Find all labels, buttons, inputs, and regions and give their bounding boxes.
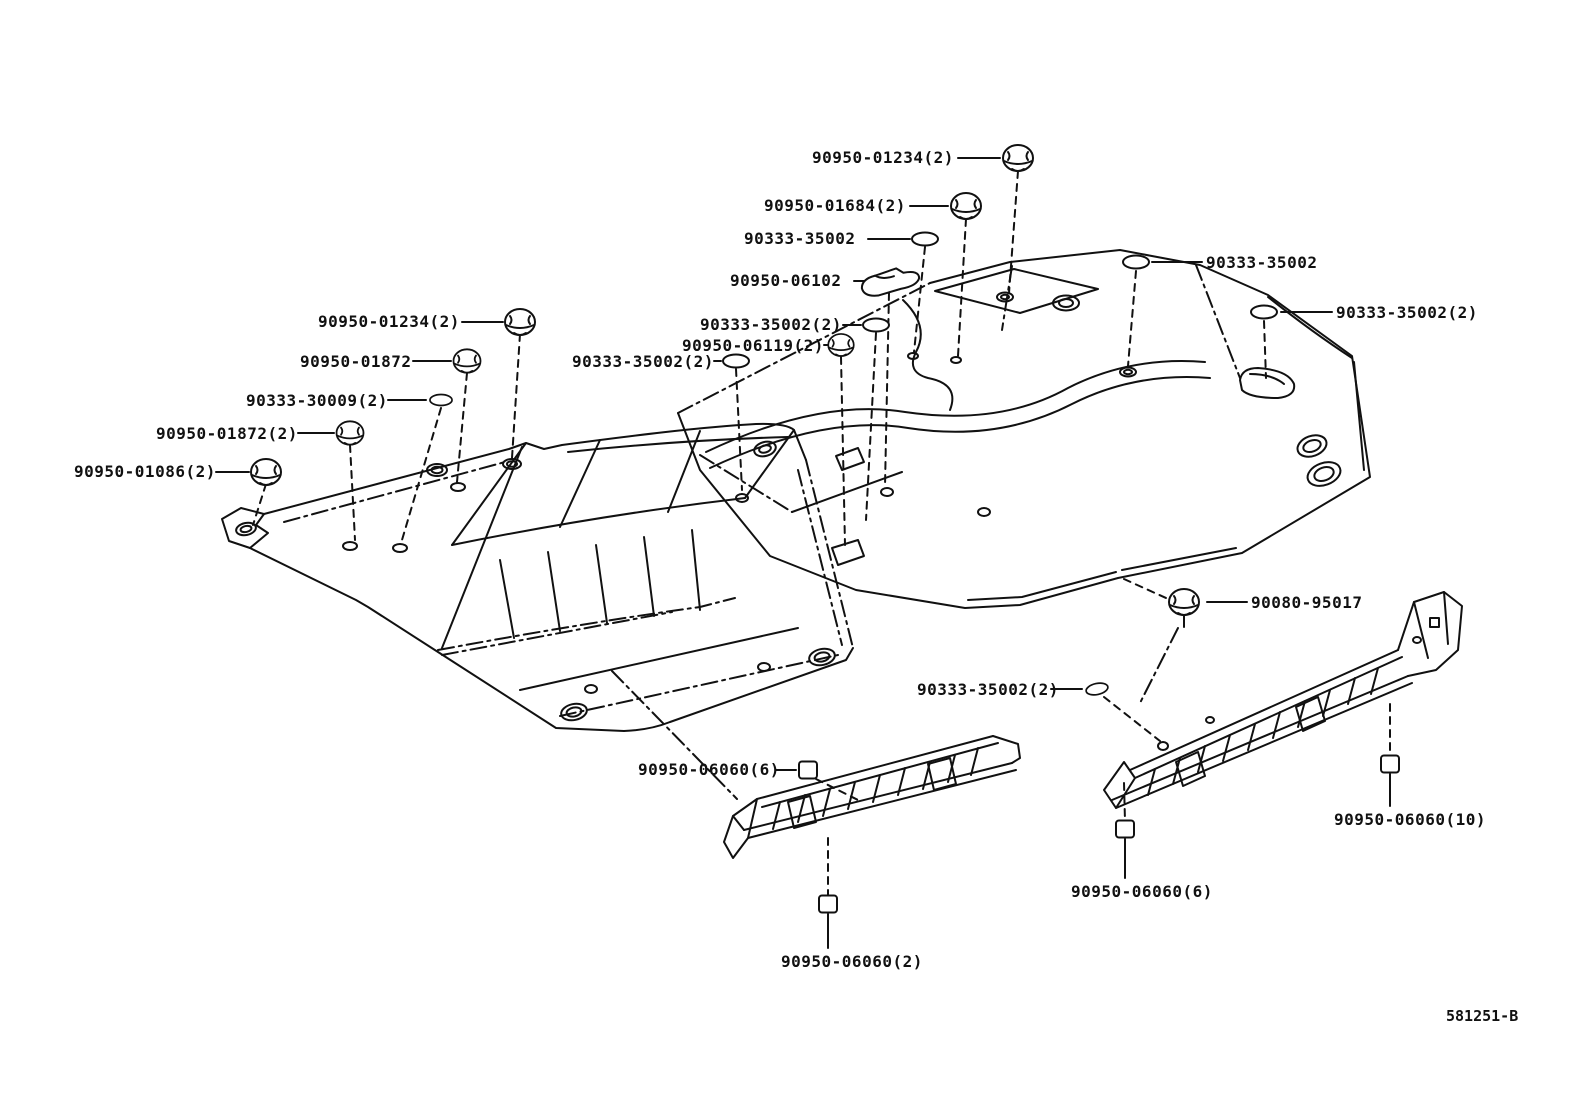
grommet-plug-icon [828, 334, 854, 356]
part-label-90950-01234-left: 90950-01234(2) [318, 312, 460, 332]
left-rocker-silencer-strip [724, 736, 1020, 858]
part-label-90950-01086: 90950-01086(2) [74, 462, 216, 482]
parts-diagram: 90950-01234(2) 90950-01684(2) 90333-3500… [0, 0, 1592, 1099]
grommet-plug-icon [251, 459, 281, 485]
grommet-plug-icon [454, 349, 481, 372]
oval-washer-icon [430, 394, 452, 405]
part-label-90333-35002-right-2: 90333-35002(2) [1336, 303, 1478, 323]
part-label-90950-01872-2: 90950-01872(2) [156, 424, 298, 444]
drawing-number: 581251-B [1446, 1007, 1518, 1025]
part-label-90333-35002-right: 90333-35002 [1206, 253, 1317, 273]
oval-washer-icon [912, 233, 938, 246]
square-clip-icon [799, 762, 817, 779]
rear-floor-silencer-pad [678, 250, 1370, 608]
square-clip-icon [819, 896, 837, 913]
grommet-plug-icon [1003, 145, 1033, 171]
part-label-90333-35002-top: 90333-35002 [744, 229, 855, 249]
part-label-90950-06060-6-left: 90950-06060(6) [638, 760, 780, 780]
part-label-90333-35002-bottom: 90333-35002(2) [917, 680, 1059, 700]
oval-washer-icon [1251, 306, 1277, 319]
front-floor-silencer-pad [222, 424, 853, 731]
part-label-90080-95017: 90080-95017 [1251, 593, 1362, 613]
part-label-90950-01684: 90950-01684(2) [764, 196, 906, 216]
part-label-90333-35002-mid-b: 90333-35002(2) [572, 352, 714, 372]
oval-washer-icon [1085, 681, 1109, 696]
part-label-90950-06060-10: 90950-06060(10) [1334, 810, 1486, 830]
grommet-plug-icon [337, 421, 364, 444]
diagram-line-art [0, 0, 1592, 1099]
part-label-90950-01234-top: 90950-01234(2) [812, 148, 954, 168]
grommet-plug-icon [951, 193, 981, 219]
flat-pad-icon [859, 263, 921, 298]
oval-washer-icon [863, 319, 889, 332]
part-label-90950-06060-6-right: 90950-06060(6) [1071, 882, 1213, 902]
part-label-90950-06102: 90950-06102 [730, 271, 841, 291]
oval-washer-icon [723, 355, 749, 368]
square-clip-icon [1116, 821, 1134, 838]
part-label-90950-01872: 90950-01872 [300, 352, 411, 372]
grommet-plug-icon [1169, 589, 1199, 615]
part-label-90333-30009: 90333-30009(2) [246, 391, 388, 411]
right-rocker-silencer-strip [1104, 592, 1462, 808]
part-label-90333-35002-mid-a: 90333-35002(2) [700, 315, 842, 335]
part-label-90950-06060-2: 90950-06060(2) [781, 952, 923, 972]
oval-washer-icon [1123, 256, 1149, 269]
grommet-plug-icon [505, 309, 535, 335]
square-clip-icon [1381, 756, 1399, 773]
